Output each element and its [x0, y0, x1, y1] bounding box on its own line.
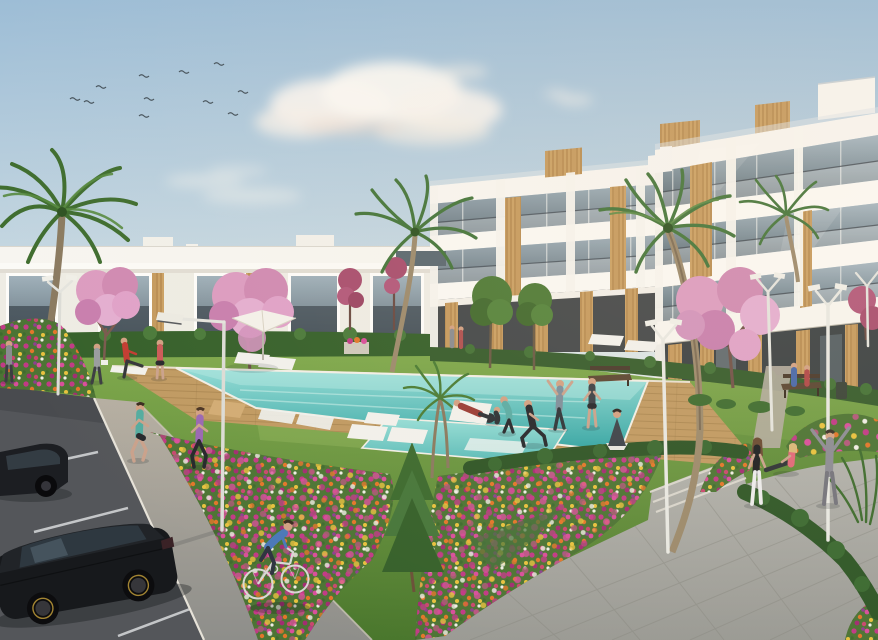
warm-light-overlay	[0, 0, 878, 640]
render-canvas: Exterior CGI render of a new-build resid…	[0, 0, 878, 640]
architectural-render: Exterior CGI render of a new-build resid…	[0, 0, 878, 640]
